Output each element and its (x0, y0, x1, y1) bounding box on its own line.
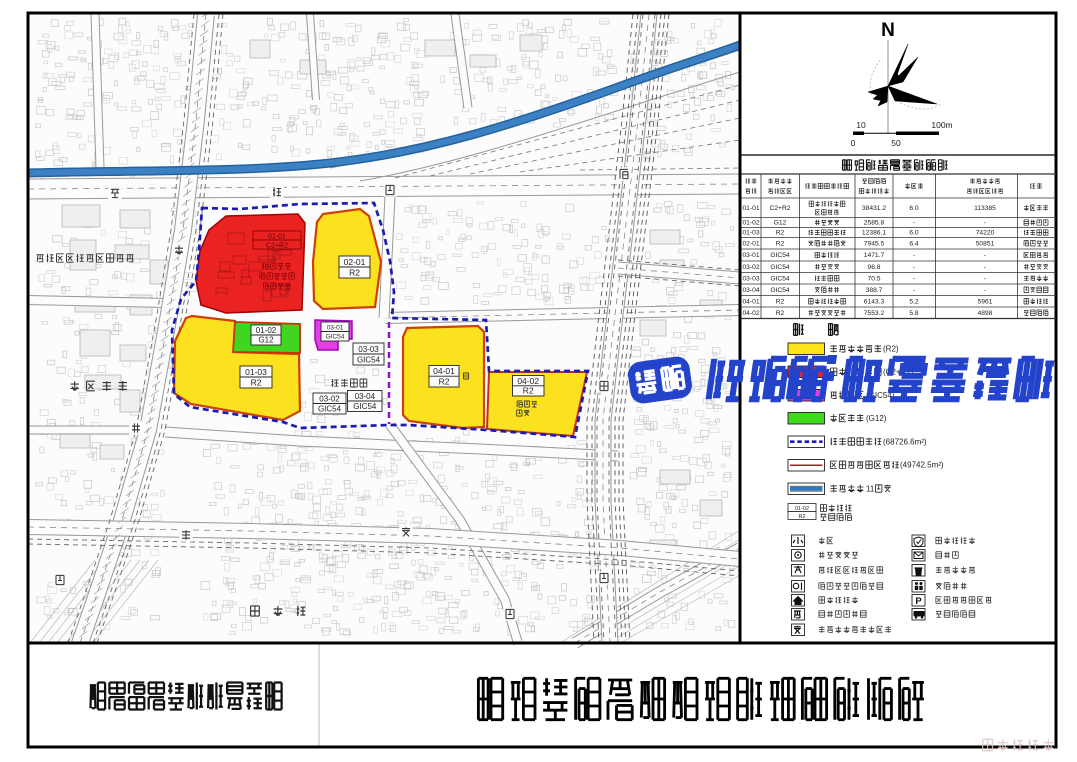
svg-text:388.7: 388.7 (866, 287, 883, 294)
svg-text:GIC54: GIC54 (770, 252, 790, 259)
svg-text:-: - (913, 252, 915, 259)
svg-text:-: - (984, 275, 986, 282)
svg-text:R2: R2 (776, 310, 785, 317)
svg-text:(49742.5m²): (49742.5m²) (900, 461, 944, 470)
svg-text:113385: 113385 (974, 205, 996, 212)
svg-text:7553.2: 7553.2 (864, 310, 885, 317)
svg-text:5.8: 5.8 (909, 310, 919, 317)
svg-text:-: - (913, 275, 915, 282)
svg-text:01-02: 01-02 (742, 220, 759, 227)
svg-text:03-04: 03-04 (742, 287, 759, 294)
svg-text:50: 50 (891, 138, 901, 148)
svg-text:6.0: 6.0 (909, 205, 919, 212)
svg-text:GIC54: GIC54 (770, 287, 790, 294)
svg-text:01-03: 01-03 (742, 230, 759, 237)
svg-text:G12: G12 (774, 220, 787, 227)
svg-text:10: 10 (856, 120, 866, 130)
svg-text:96.8: 96.8 (867, 264, 880, 271)
svg-text:12386.1: 12386.1 (862, 230, 886, 237)
svg-text:-: - (984, 287, 986, 294)
svg-text:(68726.6m²): (68726.6m²) (883, 437, 927, 446)
svg-text:N: N (881, 20, 895, 41)
svg-text:03-03: 03-03 (742, 275, 759, 282)
svg-text:7945.5: 7945.5 (864, 240, 885, 247)
svg-text:-: - (984, 264, 986, 271)
svg-text:50851: 50851 (976, 240, 995, 247)
svg-text:-: - (913, 264, 915, 271)
svg-text:-: - (984, 252, 986, 259)
svg-text:04-01: 04-01 (742, 298, 759, 305)
svg-text:01-01: 01-01 (742, 205, 759, 212)
svg-text:03-01: 03-01 (742, 252, 759, 259)
svg-text:74220: 74220 (976, 230, 995, 237)
svg-text:GIC54: GIC54 (770, 264, 790, 271)
svg-text:6.0: 6.0 (909, 230, 919, 237)
svg-text:R2: R2 (776, 298, 785, 305)
svg-text:5961: 5961 (978, 298, 993, 305)
svg-text:4898: 4898 (978, 310, 993, 317)
svg-text:R2: R2 (798, 514, 805, 520)
svg-text:04-02: 04-02 (742, 310, 759, 317)
svg-text:6.4: 6.4 (909, 240, 919, 247)
svg-text:P: P (915, 596, 922, 607)
svg-text:R2: R2 (776, 230, 785, 237)
svg-text:100m: 100m (931, 120, 952, 130)
svg-text:R2: R2 (776, 240, 785, 247)
svg-text:38431.2: 38431.2 (862, 205, 886, 212)
svg-text:11: 11 (866, 484, 875, 493)
svg-text:1471.7: 1471.7 (864, 252, 885, 259)
svg-text:2585.8: 2585.8 (864, 220, 885, 227)
svg-text:-: - (913, 287, 915, 294)
svg-text:C2+R2: C2+R2 (769, 205, 790, 212)
svg-text:70.5: 70.5 (867, 275, 880, 282)
svg-text:(R2): (R2) (883, 345, 899, 354)
svg-text:02-01: 02-01 (742, 240, 759, 247)
svg-text:6143.3: 6143.3 (864, 298, 885, 305)
svg-text:5.2: 5.2 (909, 298, 919, 305)
svg-text:0: 0 (851, 138, 856, 148)
svg-text:(G12): (G12) (866, 414, 887, 423)
svg-text:GIC54: GIC54 (770, 275, 790, 282)
svg-text:-: - (913, 220, 915, 227)
svg-text:03-02: 03-02 (742, 264, 759, 271)
svg-text:-: - (984, 220, 986, 227)
svg-text:01-02: 01-02 (795, 506, 809, 512)
